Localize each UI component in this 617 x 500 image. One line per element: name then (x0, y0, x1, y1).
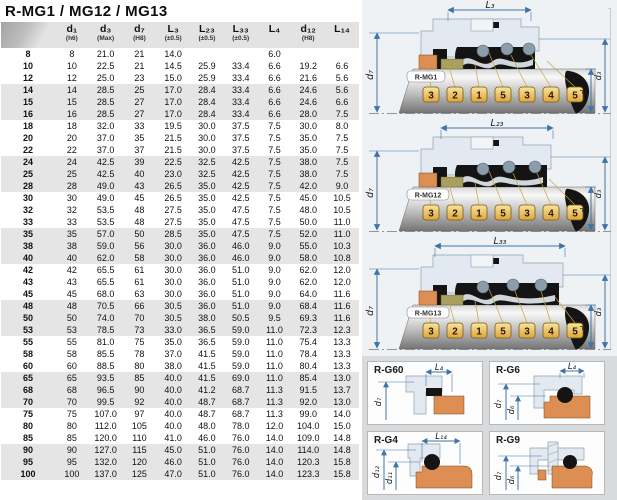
dimension-top: L₂₃ (441, 119, 553, 139)
table-cell: 51.0 (190, 444, 224, 456)
table-cell: 70 (55, 396, 89, 408)
dim-label-d6: d₆ (507, 475, 517, 484)
table-cell: 47.5 (224, 228, 258, 240)
row-size-cell: 55 (1, 336, 55, 348)
panel-r-g60: R-G60 L₄ (367, 361, 483, 425)
table-cell: 76.0 (224, 444, 258, 456)
table-cell: 9.0 (258, 300, 292, 312)
spring (477, 45, 489, 57)
seal-diagram-r-mg1: 3 2 1 5 3 4 5 R-MG1 L₃ (363, 1, 615, 119)
table-cell: 14.0 (258, 468, 292, 480)
callout-number: 1 (476, 91, 482, 102)
table-cell: 27.5 (156, 204, 190, 216)
table-cell: 6.6 (325, 60, 359, 72)
table-cell: 13.3 (325, 348, 359, 360)
table-cell: 9.0 (258, 264, 292, 276)
table-cell: 32 (55, 204, 89, 216)
table-cell: 51.0 (224, 264, 258, 276)
table-cell: 21.5 (156, 132, 190, 144)
dim-label-d12: d₁₂ (372, 465, 382, 478)
table-cell: 30.0 (156, 288, 190, 300)
seat-detail-drawing: d₇ d₆ (490, 432, 604, 494)
callout-number: 3 (428, 91, 434, 102)
callout-number: 1 (476, 209, 482, 220)
table-cell: 35 (55, 228, 89, 240)
retainer-notch (471, 19, 493, 31)
seal-diagram-r-mg12: 3 2 1 5 3 4 5 R-MG12 L₂₃ (363, 119, 615, 237)
table-cell: 30.0 (291, 120, 325, 132)
table-row: 686896.59040.041.268.711.391.513.7 (1, 384, 359, 396)
table-row: 484870.56630.536.051.09.068.411.6 (1, 300, 359, 312)
table-cell: 99.5 (89, 396, 123, 408)
table-cell: 48 (123, 216, 157, 228)
table-cell: 38.0 (156, 360, 190, 372)
table-cell: 33.4 (224, 108, 258, 120)
table-cell: 39 (123, 156, 157, 168)
dim-label-d7: d₇ (374, 397, 384, 406)
table-cell: 47.5 (224, 216, 258, 228)
table-row: 151528.52717.028.433.46.624.66.6 (1, 96, 359, 108)
table-cell: 78.5 (89, 324, 123, 336)
table-cell: 68.7 (224, 384, 258, 396)
table-cell: 14.8 (325, 444, 359, 456)
table-cell: 8 (55, 48, 89, 60)
table-cell: 7.5 (258, 180, 292, 192)
table-cell: 6.6 (258, 96, 292, 108)
table-cell: 48.0 (291, 204, 325, 216)
table-cell: 19.5 (156, 120, 190, 132)
seat-ring (434, 396, 464, 414)
table-row: 282849.04326.535.042.57.542.09.0 (1, 180, 359, 192)
table-cell: 100 (55, 468, 89, 480)
table-cell: 49.0 (89, 180, 123, 192)
seat-step (538, 470, 546, 480)
face-ring (441, 177, 463, 187)
row-size-cell: 48 (1, 300, 55, 312)
table-cell: 11.3 (258, 384, 292, 396)
table-row: 141428.52517.028.433.46.624.65.6 (1, 84, 359, 96)
table-cell: 28.0 (291, 108, 325, 120)
table-cell: 76.0 (224, 456, 258, 468)
table-cell: 14.5 (156, 60, 190, 72)
table-cell: 58 (123, 252, 157, 264)
table-cell: 51.0 (224, 276, 258, 288)
table-cell: 12.0 (325, 264, 359, 276)
dim-label-d7: d₇ (365, 306, 376, 316)
callout-number: 5 (500, 91, 506, 102)
table-cell: 13.0 (325, 372, 359, 384)
diagram-section: 3 2 1 5 3 4 5 R-MG1 L₃ (362, 0, 617, 500)
table-cell: 41.0 (156, 432, 190, 444)
table-cell: 18 (55, 120, 89, 132)
table-row: 404062.05830.036.046.09.058.010.8 (1, 252, 359, 264)
panel-r-g9: R-G9 (489, 431, 605, 495)
dim-label-L4: L₄ (435, 363, 444, 373)
table-cell: 14.8 (325, 432, 359, 444)
callout-badges: 3 2 1 5 3 4 5 (423, 205, 583, 220)
table-cell: 37 (123, 144, 157, 156)
row-size-cell: 18 (1, 120, 55, 132)
table-row: 100100137.012547.051.076.014.0123.315.8 (1, 468, 359, 480)
callout-number: 3 (428, 209, 434, 220)
table-cell: 35.0 (190, 228, 224, 240)
dim-label-L4: L₄ (568, 362, 577, 372)
table-cell: 42.5 (89, 156, 123, 168)
set-screw (493, 140, 499, 146)
table-cell: 43 (55, 276, 89, 288)
column-header: L₃(±0.5) (156, 22, 190, 48)
table-cell: 68.7 (224, 408, 258, 420)
table-cell: 48.7 (190, 396, 224, 408)
seal-cross-section-drawing: 3 2 1 5 3 4 5 R-MG12 L₂₃ (363, 119, 615, 237)
table-cell: 42.5 (224, 156, 258, 168)
table-cell: 25.9 (190, 60, 224, 72)
table-cell: 33.0 (156, 324, 190, 336)
table-row: 181832.03319.530.037.57.530.08.0 (1, 120, 359, 132)
table-cell: 70 (123, 312, 157, 324)
callout-number: 4 (548, 91, 554, 102)
table-cell: 92 (123, 396, 157, 408)
callout-number: 5 (500, 327, 506, 338)
callout-number: 5 (572, 91, 578, 102)
table-cell: 96.5 (89, 384, 123, 396)
table-cell: 9.0 (325, 180, 359, 192)
table-cell: 109.0 (291, 432, 325, 444)
table-cell: 80.4 (291, 360, 325, 372)
table-cell: 46.0 (190, 432, 224, 444)
seat-ring (419, 291, 437, 305)
seal-cross-section-drawing: 3 2 1 5 3 4 5 R-MG13 L₃₃ (363, 237, 615, 355)
table-cell: 6.6 (325, 96, 359, 108)
callout-number: 2 (452, 91, 458, 102)
table-cell: 85 (55, 432, 89, 444)
table-cell: 35.0 (291, 132, 325, 144)
table-cell: 36.0 (190, 288, 224, 300)
row-size-cell: 45 (1, 288, 55, 300)
column-header: L₂₃(±0.5) (190, 22, 224, 48)
table-cell: 75.4 (291, 336, 325, 348)
seat-detail-drawing: L₁₄ d₁₂ d₁₁ (368, 432, 482, 494)
table-cell: 37.5 (224, 132, 258, 144)
table-cell: 69.0 (224, 372, 258, 384)
table-cell: 14.0 (258, 432, 292, 444)
table-cell: 51.0 (190, 456, 224, 468)
table-cell: 85.4 (291, 372, 325, 384)
callout-number: 5 (500, 209, 506, 220)
table-row: 252542.54023.032.542.57.538.07.5 (1, 168, 359, 180)
table-cell: 22.5 (89, 60, 123, 72)
seat-ring (552, 466, 592, 488)
dim-label-d3: d₃ (594, 307, 604, 316)
table-cell: 11.0 (325, 228, 359, 240)
table-cell: 112.0 (89, 420, 123, 432)
dim-label-d7: d₇ (365, 188, 376, 198)
table-cell: 78 (123, 348, 157, 360)
set-screw (493, 258, 499, 264)
spring (523, 43, 535, 55)
spring (535, 279, 547, 291)
table-section: R-MG1 / MG12 / MG13 d₁(h6)d₃(Max)d₇(H8)L… (0, 0, 362, 480)
table-cell: 7.5 (258, 120, 292, 132)
table-cell: 23 (123, 72, 157, 84)
table-cell: 27 (123, 108, 157, 120)
table-cell: 12.0 (258, 420, 292, 432)
table-cell: 75 (123, 336, 157, 348)
row-size-cell: 24 (1, 156, 55, 168)
table-cell: 11.0 (258, 360, 292, 372)
table-cell: 12.0 (325, 276, 359, 288)
table-cell: 30.0 (156, 252, 190, 264)
table-cell: 37.0 (89, 144, 123, 156)
seat-ring (419, 55, 437, 69)
table-cell: 7.5 (258, 144, 292, 156)
set-screw (493, 22, 499, 28)
table-cell: 11.0 (258, 324, 292, 336)
row-size-cell: 53 (1, 324, 55, 336)
dim-label-d6: d₆ (507, 405, 517, 414)
table-cell: 7.5 (258, 216, 292, 228)
table-cell: 47.5 (224, 204, 258, 216)
table-cell: 14.0 (258, 456, 292, 468)
page-title: R-MG1 / MG12 / MG13 (5, 3, 362, 20)
table-cell: 28.5 (156, 228, 190, 240)
table-cell: 35 (123, 132, 157, 144)
table-cell: 45 (55, 288, 89, 300)
row-size-cell: 33 (1, 216, 55, 228)
table-cell: 9.0 (258, 288, 292, 300)
seal-diagram-stack: 3 2 1 5 3 4 5 R-MG1 L₃ (363, 1, 615, 355)
table-cell: 6.6 (258, 72, 292, 84)
column-header: L₁₄ (325, 22, 359, 48)
table-cell: 21 (123, 48, 157, 60)
table-cell: 48.7 (190, 408, 224, 420)
dim-label-L14: L₁₄ (435, 432, 447, 442)
table-cell: 11.6 (325, 288, 359, 300)
row-size-cell: 95 (1, 456, 55, 468)
table-cell: 88.5 (89, 360, 123, 372)
table-cell: 59.0 (224, 336, 258, 348)
table-cell: 21 (123, 60, 157, 72)
table-cell: 56 (123, 240, 157, 252)
table-cell: 46.0 (224, 252, 258, 264)
table-cell: 28 (55, 180, 89, 192)
table-cell: 75 (55, 408, 89, 420)
table-cell: 8.0 (325, 120, 359, 132)
table-cell: 9.5 (258, 312, 292, 324)
callout-number: 3 (524, 209, 530, 220)
table-cell: 7.5 (325, 144, 359, 156)
table-cell: 14.0 (156, 48, 190, 60)
spring (501, 43, 513, 55)
dim-label-d1: d₁ (580, 323, 590, 332)
table-cell: 26.5 (156, 180, 190, 192)
table-cell: 35.0 (190, 192, 224, 204)
row-size-cell: 32 (1, 204, 55, 216)
row-size-cell: 60 (1, 360, 55, 372)
table-cell: 65 (55, 372, 89, 384)
table-cell: 33.4 (224, 84, 258, 96)
table-cell: 7.5 (325, 168, 359, 180)
dimension-top: L₃ (448, 1, 531, 21)
callout-number: 3 (524, 327, 530, 338)
table-cell: 7.5 (325, 108, 359, 120)
table-cell: 30 (55, 192, 89, 204)
table-cell: 33 (55, 216, 89, 228)
table-cell: 10.8 (325, 252, 359, 264)
table-cell: 80 (123, 360, 157, 372)
dim-label-L: L₃₃ (494, 237, 507, 247)
callout-number: 4 (548, 327, 554, 338)
column-header: d₇(H8) (123, 22, 157, 48)
table-cell: 25.9 (190, 72, 224, 84)
table-cell: 38.0 (190, 312, 224, 324)
table-cell (291, 48, 325, 60)
table-row: 161628.52717.028.433.46.628.07.5 (1, 108, 359, 120)
table-cell: 7.5 (325, 156, 359, 168)
spring (529, 161, 541, 173)
o-ring (557, 387, 573, 403)
table-row: 323253.54827.535.047.57.548.010.5 (1, 204, 359, 216)
seal-diagram-r-mg13: 3 2 1 5 3 4 5 R-MG13 L₃₃ (363, 237, 615, 355)
row-size-cell: 43 (1, 276, 55, 288)
table-cell: 11.3 (258, 408, 292, 420)
row-size-cell: 40 (1, 252, 55, 264)
table-cell: 11.0 (325, 216, 359, 228)
table-row: 303049.04526.535.042.57.545.010.5 (1, 192, 359, 204)
table-cell: 57.0 (89, 228, 123, 240)
seat-detail-drawing: L₄ d₇ (368, 362, 482, 424)
table-cell: 61 (123, 276, 157, 288)
table-cell: 68.4 (291, 300, 325, 312)
table-cell: 78.4 (291, 348, 325, 360)
table-cell (224, 48, 258, 60)
table-cell: 35.0 (190, 216, 224, 228)
table-cell: 62.0 (89, 252, 123, 264)
table-cell: 14 (55, 84, 89, 96)
table-cell: 15.0 (325, 420, 359, 432)
table-cell: 93.5 (89, 372, 123, 384)
table-cell: 58.0 (291, 252, 325, 264)
table-row: 424265.56130.036.051.09.062.012.0 (1, 264, 359, 276)
table-cell: 7.5 (258, 192, 292, 204)
row-size-cell: 12 (1, 72, 55, 84)
table-cell: 35.0 (190, 204, 224, 216)
table-row: 7575107.09740.048.768.711.399.014.0 (1, 408, 359, 420)
table-cell: 14.0 (258, 444, 292, 456)
callout-badges: 3 2 1 5 3 4 5 (423, 87, 583, 102)
table-cell: 74.0 (89, 312, 123, 324)
table-cell: 45.0 (291, 192, 325, 204)
table-row: 505074.07030.538.050.59.569.311.6 (1, 312, 359, 324)
table-cell: 40.0 (156, 372, 190, 384)
dimension-top: L₃₃ (435, 237, 565, 257)
table-cell: 14.0 (325, 408, 359, 420)
table-cell: 42.0 (291, 180, 325, 192)
table-cell: 37.5 (224, 144, 258, 156)
table-cell: 115 (123, 444, 157, 456)
table-cell: 107.0 (89, 408, 123, 420)
row-size-cell: 10 (1, 60, 55, 72)
table-cell: 10.3 (325, 240, 359, 252)
table-cell: 7.5 (258, 132, 292, 144)
dim-label-L: L₂₃ (491, 119, 504, 129)
table-cell: 40.0 (156, 408, 190, 420)
retainer-notch (471, 255, 493, 267)
table-cell: 16 (55, 108, 89, 120)
model-tag-label: R-MG12 (415, 193, 442, 200)
table-row: 8821.02114.06.0 (1, 48, 359, 60)
table-body: 8821.02114.06.0101022.52114.525.933.46.6… (1, 48, 359, 480)
table-cell: 7.5 (258, 228, 292, 240)
table-cell: 22 (55, 144, 89, 156)
table-cell: 76.0 (224, 432, 258, 444)
column-header: L₄ (258, 22, 292, 48)
table-cell: 114.0 (291, 444, 325, 456)
table-cell: 73 (123, 324, 157, 336)
table-cell: 65.5 (89, 276, 123, 288)
table-cell: 38.0 (291, 156, 325, 168)
table-cell: 53.5 (89, 216, 123, 228)
table-cell: 46.0 (224, 240, 258, 252)
table-cell: 38 (55, 240, 89, 252)
row-size-cell: 100 (1, 468, 55, 480)
table-cell: 49.0 (89, 192, 123, 204)
table-cell: 6.0 (258, 48, 292, 60)
seat-detail-drawing: L₄ d₇ d₆ (490, 362, 604, 424)
spring (477, 163, 489, 175)
table-cell: 36.0 (190, 240, 224, 252)
table-cell: 35.0 (291, 144, 325, 156)
table-cell: 32.5 (190, 156, 224, 168)
o-ring (563, 455, 577, 469)
spring (503, 161, 515, 173)
table-row: 353557.05028.535.047.57.552.011.0 (1, 228, 359, 240)
table-cell: 23.0 (156, 168, 190, 180)
table-cell: 120.0 (89, 432, 123, 444)
table-cell: 25 (123, 84, 157, 96)
table-cell: 41.5 (190, 360, 224, 372)
row-size-cell: 38 (1, 240, 55, 252)
table-cell: 7.5 (325, 132, 359, 144)
table-cell: 76.0 (224, 468, 258, 480)
callout-number: 2 (452, 327, 458, 338)
table-cell: 59.0 (224, 348, 258, 360)
table-cell: 59.0 (224, 324, 258, 336)
table-cell: 45 (123, 192, 157, 204)
table-cell: 22.5 (156, 156, 190, 168)
table-row: 242442.53922.532.542.57.538.07.5 (1, 156, 359, 168)
seat-ring (416, 466, 472, 488)
table-cell: 26.5 (156, 192, 190, 204)
table-cell: 13.3 (325, 360, 359, 372)
table-cell: 53 (55, 324, 89, 336)
retainer-notch (471, 137, 493, 149)
table-cell: 127.0 (89, 444, 123, 456)
table-cell: 40.0 (156, 420, 190, 432)
table-row: 434365.56130.036.051.09.062.012.0 (1, 276, 359, 288)
table-cell: 42.5 (89, 168, 123, 180)
table-cell: 40.0 (156, 384, 190, 396)
table-cell: 62.0 (291, 264, 325, 276)
table-cell: 78.0 (224, 420, 258, 432)
table-cell: 15.8 (325, 456, 359, 468)
table-cell: 42 (55, 264, 89, 276)
table-cell: 37.5 (224, 120, 258, 132)
table-cell (190, 48, 224, 60)
table-cell: 6.6 (258, 60, 292, 72)
table-cell: 6.6 (258, 84, 292, 96)
table-cell: 30.0 (190, 132, 224, 144)
